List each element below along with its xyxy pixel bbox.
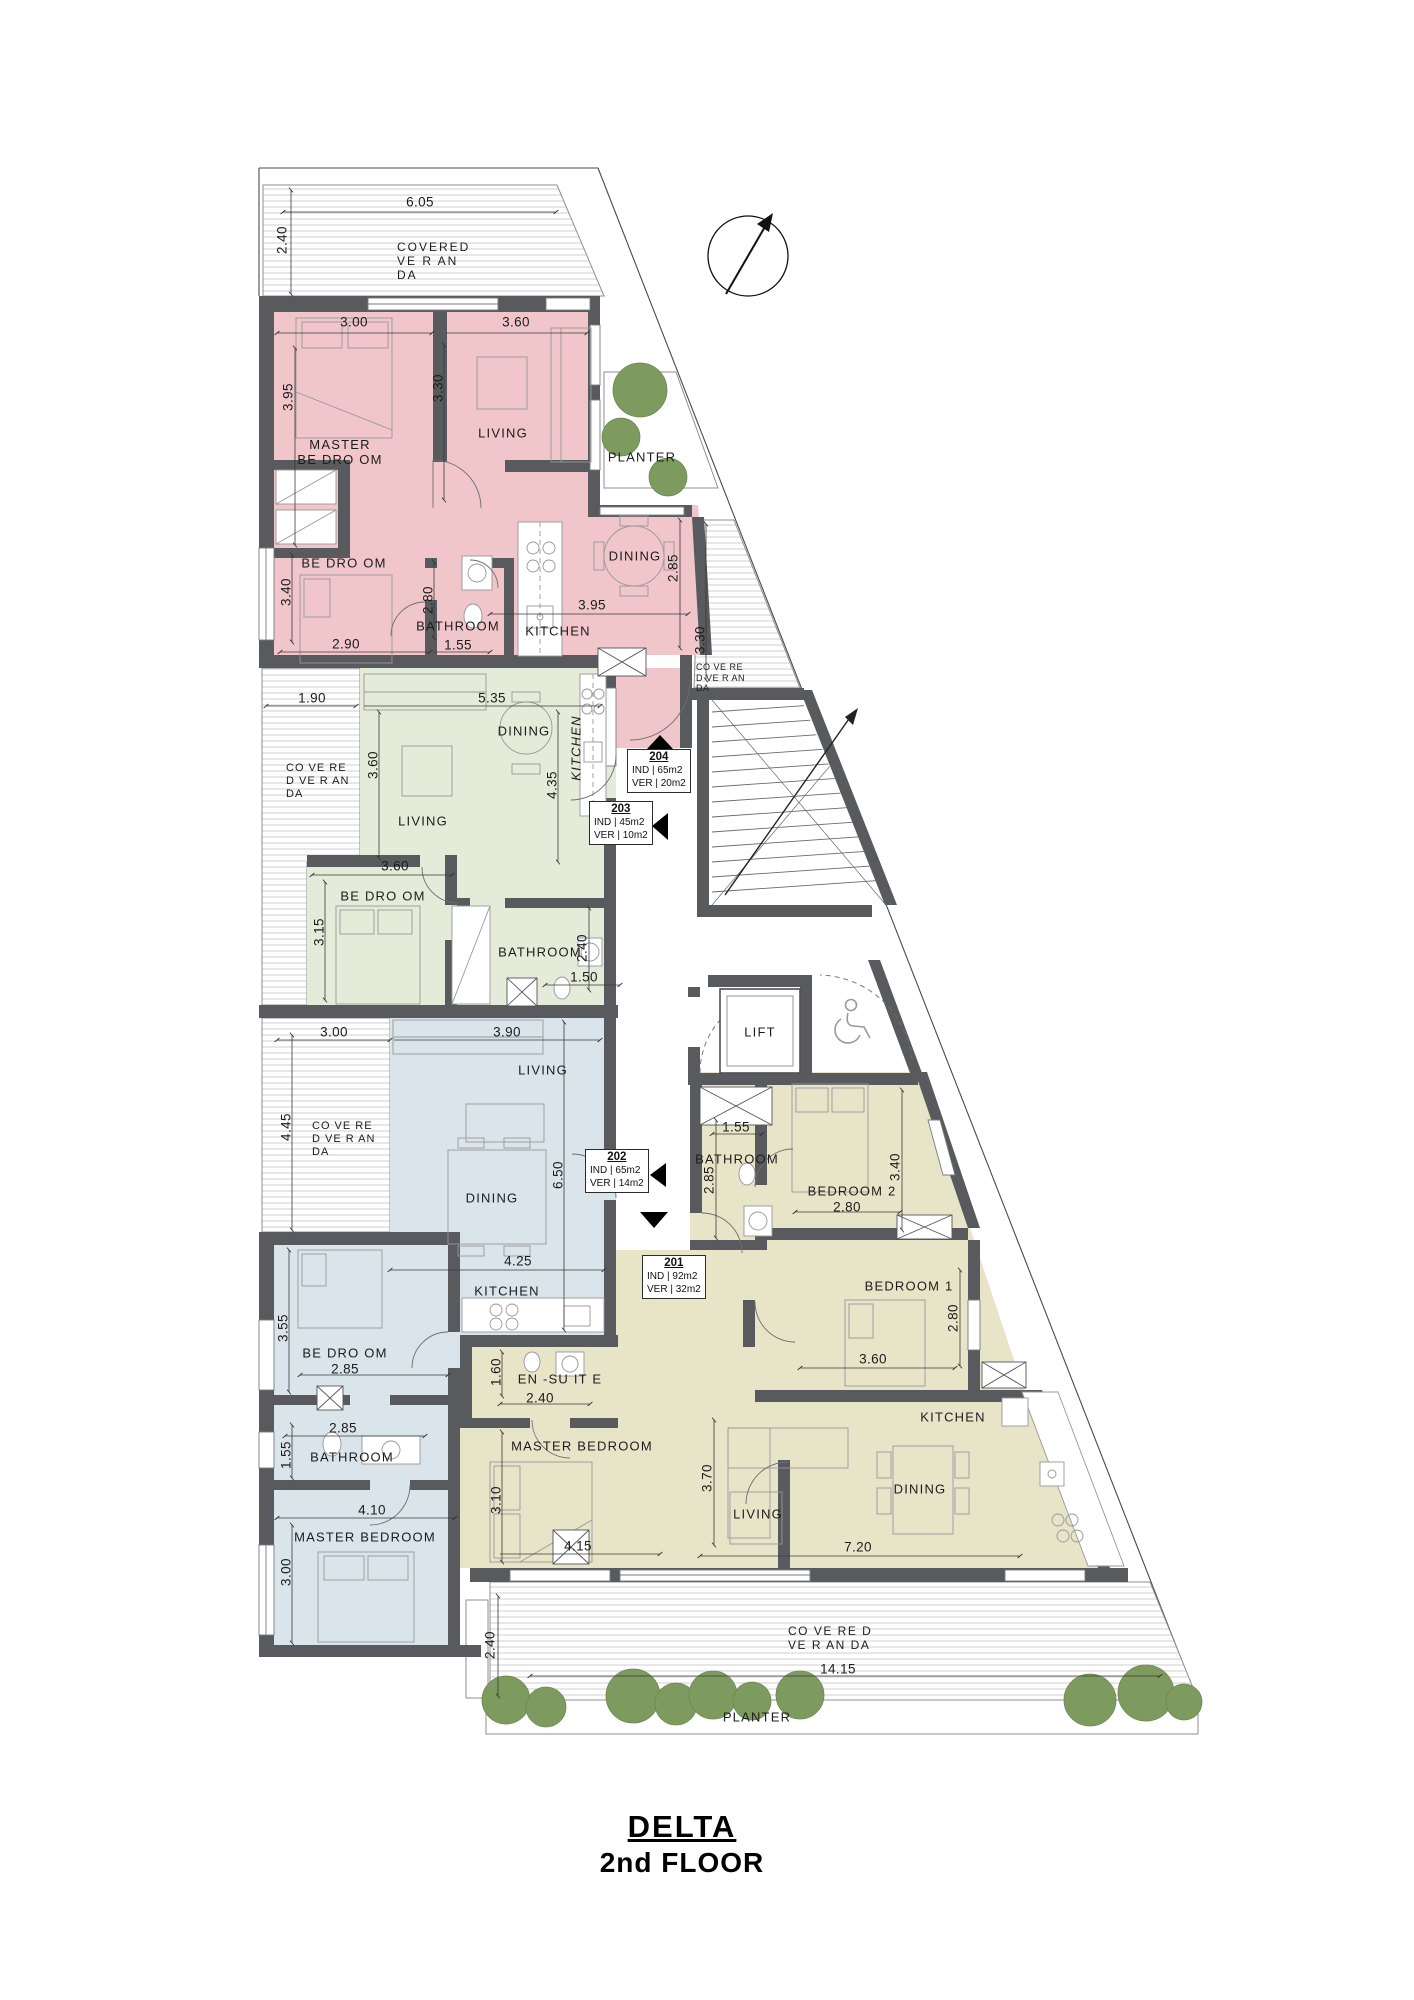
- room-202-master: MASTER BEDROOM: [294, 1530, 436, 1545]
- dim-204-bath-w: 1.55: [444, 638, 472, 653]
- dim-203-bedroom-w: 3.60: [381, 859, 409, 874]
- plan-subtitle: 2nd FLOOR: [600, 1847, 765, 1879]
- room-204-bathroom: BATHROOM: [416, 619, 500, 634]
- dim-201-ensuite-w: 2.40: [526, 1391, 554, 1406]
- floor-plan-drawing: [0, 0, 1414, 2000]
- dim-201-bedroom2-w: 2.80: [833, 1200, 861, 1215]
- dim-204-living-w: 3.60: [502, 315, 530, 330]
- room-201-kitchen: KITCHEN: [920, 1410, 985, 1425]
- veranda-top-label: COVEREDVE R ANDA: [397, 240, 470, 282]
- dim-veranda-right-depth: 3.30: [693, 626, 708, 654]
- room-202-dining: DINING: [466, 1191, 519, 1206]
- unit-info-202: 202 IND | 65m2VER | 14m2: [585, 1149, 649, 1193]
- room-204-kitchen: KITCHEN: [525, 624, 590, 639]
- dim-201-bedroom1-h: 2.80: [946, 1304, 961, 1332]
- staircase: [712, 700, 886, 905]
- veranda-202-label: CO VE RED VE R ANDA: [312, 1120, 375, 1159]
- lift-label: LIFT: [744, 1025, 776, 1040]
- dim-204-living-h: 3.30: [431, 374, 446, 402]
- unit-info-203: 203 IND | 45m2VER | 10m2: [589, 801, 653, 845]
- room-201-living: LIVING: [733, 1507, 783, 1522]
- dim-veranda-bottom-width: 14.15: [820, 1662, 856, 1677]
- dim-202-dining-h: 6.50: [551, 1161, 566, 1189]
- stair-direction-arrow: [725, 708, 858, 895]
- entrance-arrow-202: [650, 1163, 666, 1187]
- dim-204-master-h: 3.95: [281, 383, 296, 411]
- room-201-bedroom1: BEDROOM 1: [865, 1279, 954, 1294]
- dim-202-kitchen-w: 4.25: [504, 1254, 532, 1269]
- room-202-living: LIVING: [518, 1063, 568, 1078]
- entrance-arrow-203: [652, 813, 668, 840]
- dim-veranda-bottom-depth: 2.40: [483, 1631, 498, 1659]
- dim-veranda-top-width: 6.05: [406, 195, 434, 210]
- dim-203-living-w: 5.35: [478, 691, 506, 706]
- dim-201-bath-h: 2.85: [702, 1166, 717, 1194]
- room-202-kitchen: KITCHEN: [474, 1284, 539, 1299]
- dim-202-master-h: 3.00: [279, 1558, 294, 1586]
- room-203-bathroom: BATHROOM: [498, 945, 582, 960]
- room-203-kitchen: KITCHEN: [569, 715, 584, 780]
- shaft-box: [317, 1386, 343, 1410]
- dim-201-dining-w: 7.20: [844, 1540, 872, 1555]
- room-204-bedroom: BE DRO OM: [301, 556, 386, 571]
- dim-202-bedroom-w: 2.85: [331, 1362, 359, 1377]
- dim-202-master-w: 4.10: [358, 1503, 386, 1518]
- room-204-living: LIVING: [478, 426, 528, 441]
- dim-201-bedroom1-w: 3.60: [859, 1352, 887, 1367]
- dim-201-bath-w: 1.55: [722, 1120, 750, 1135]
- unit-info-204: 204 IND | 65m2VER | 20m2: [627, 749, 691, 793]
- room-201-ensuite: EN -SU IT E: [518, 1372, 602, 1387]
- wheelchair-icon: [835, 1000, 870, 1043]
- veranda-203-label: CO VE RED VE R ANDA: [286, 762, 349, 801]
- dim-204-bedroom-h: 3.40: [279, 578, 294, 606]
- floor-plan-page: 6.05 2.40 COVEREDVE R ANDA 3.00 3.60 3.9…: [0, 0, 1414, 2000]
- dim-202-living-w: 3.90: [493, 1025, 521, 1040]
- room-201-dining: DINING: [894, 1482, 947, 1497]
- dim-201-ensuite-h: 1.60: [489, 1358, 504, 1386]
- entrance-arrow-201: [640, 1212, 668, 1228]
- veranda-bottom-label: CO VE RE DVE R AN DA: [788, 1624, 872, 1652]
- shower-box: [507, 978, 537, 1006]
- dim-203-bath-w: 1.50: [570, 970, 598, 985]
- north-arrow-compass: [708, 213, 788, 296]
- dim-201-living-h: 3.70: [700, 1464, 715, 1492]
- dim-203-bath-h: 2.40: [575, 934, 590, 962]
- dim-203-veranda-w: 1.90: [298, 691, 326, 706]
- dim-201-master-w: 4.15: [564, 1539, 592, 1554]
- dim-201-master-h: 3.10: [489, 1486, 504, 1514]
- dim-202-bedroom-h: 3.55: [276, 1314, 291, 1342]
- room-201-master: MASTER BEDROOM: [511, 1439, 653, 1454]
- dim-203-bedroom-h: 3.15: [312, 918, 327, 946]
- room-203-dining: DINING: [498, 724, 551, 739]
- dim-203-living-h: 3.60: [366, 751, 381, 779]
- dim-203-kitchen-h: 4.35: [545, 771, 560, 799]
- shaft-box: [982, 1362, 1026, 1388]
- room-202-bathroom: BATHROOM: [310, 1450, 394, 1465]
- room-202-bedroom: BE DRO OM: [302, 1346, 387, 1361]
- planter-top-label: PLANTER: [608, 450, 676, 465]
- dim-204-master-w: 3.00: [340, 315, 368, 330]
- room-204-master-bedroom: MASTERBE DRO OM: [297, 437, 382, 467]
- unit-info-201: 201 IND | 92m2VER | 32m2: [642, 1255, 706, 1299]
- veranda-right-label: CO VE RED VE R ANDA: [696, 662, 745, 694]
- dim-204-bath-h: 2.80: [421, 586, 436, 614]
- dim-204-kitchen-w: 3.95: [578, 598, 606, 613]
- dim-202-hall-w: 2.85: [329, 1421, 357, 1436]
- shaft-box: [598, 648, 646, 676]
- dim-202-veranda-h: 4.45: [279, 1113, 294, 1141]
- planter-bottom-label: PLANTER: [723, 1710, 791, 1725]
- dim-204-bedroom-w: 2.90: [332, 637, 360, 652]
- room-201-bedroom2: BEDROOM 2: [808, 1184, 897, 1199]
- dim-201-bedroom2-h: 3.40: [888, 1153, 903, 1181]
- room-204-dining: DINING: [609, 549, 662, 564]
- dim-204-dining-h: 2.85: [666, 554, 681, 582]
- dim-202-bath-h: 1.55: [279, 1441, 294, 1469]
- room-201-bathroom: BATHROOM: [695, 1152, 779, 1167]
- wardrobe-box: [897, 1215, 952, 1239]
- dim-veranda-top-depth: 2.40: [275, 226, 290, 254]
- room-203-bedroom: BE DRO OM: [340, 889, 425, 904]
- plan-title: DELTA: [628, 1809, 737, 1845]
- room-203-living: LIVING: [398, 814, 448, 829]
- dim-202-veranda-w: 3.00: [320, 1025, 348, 1040]
